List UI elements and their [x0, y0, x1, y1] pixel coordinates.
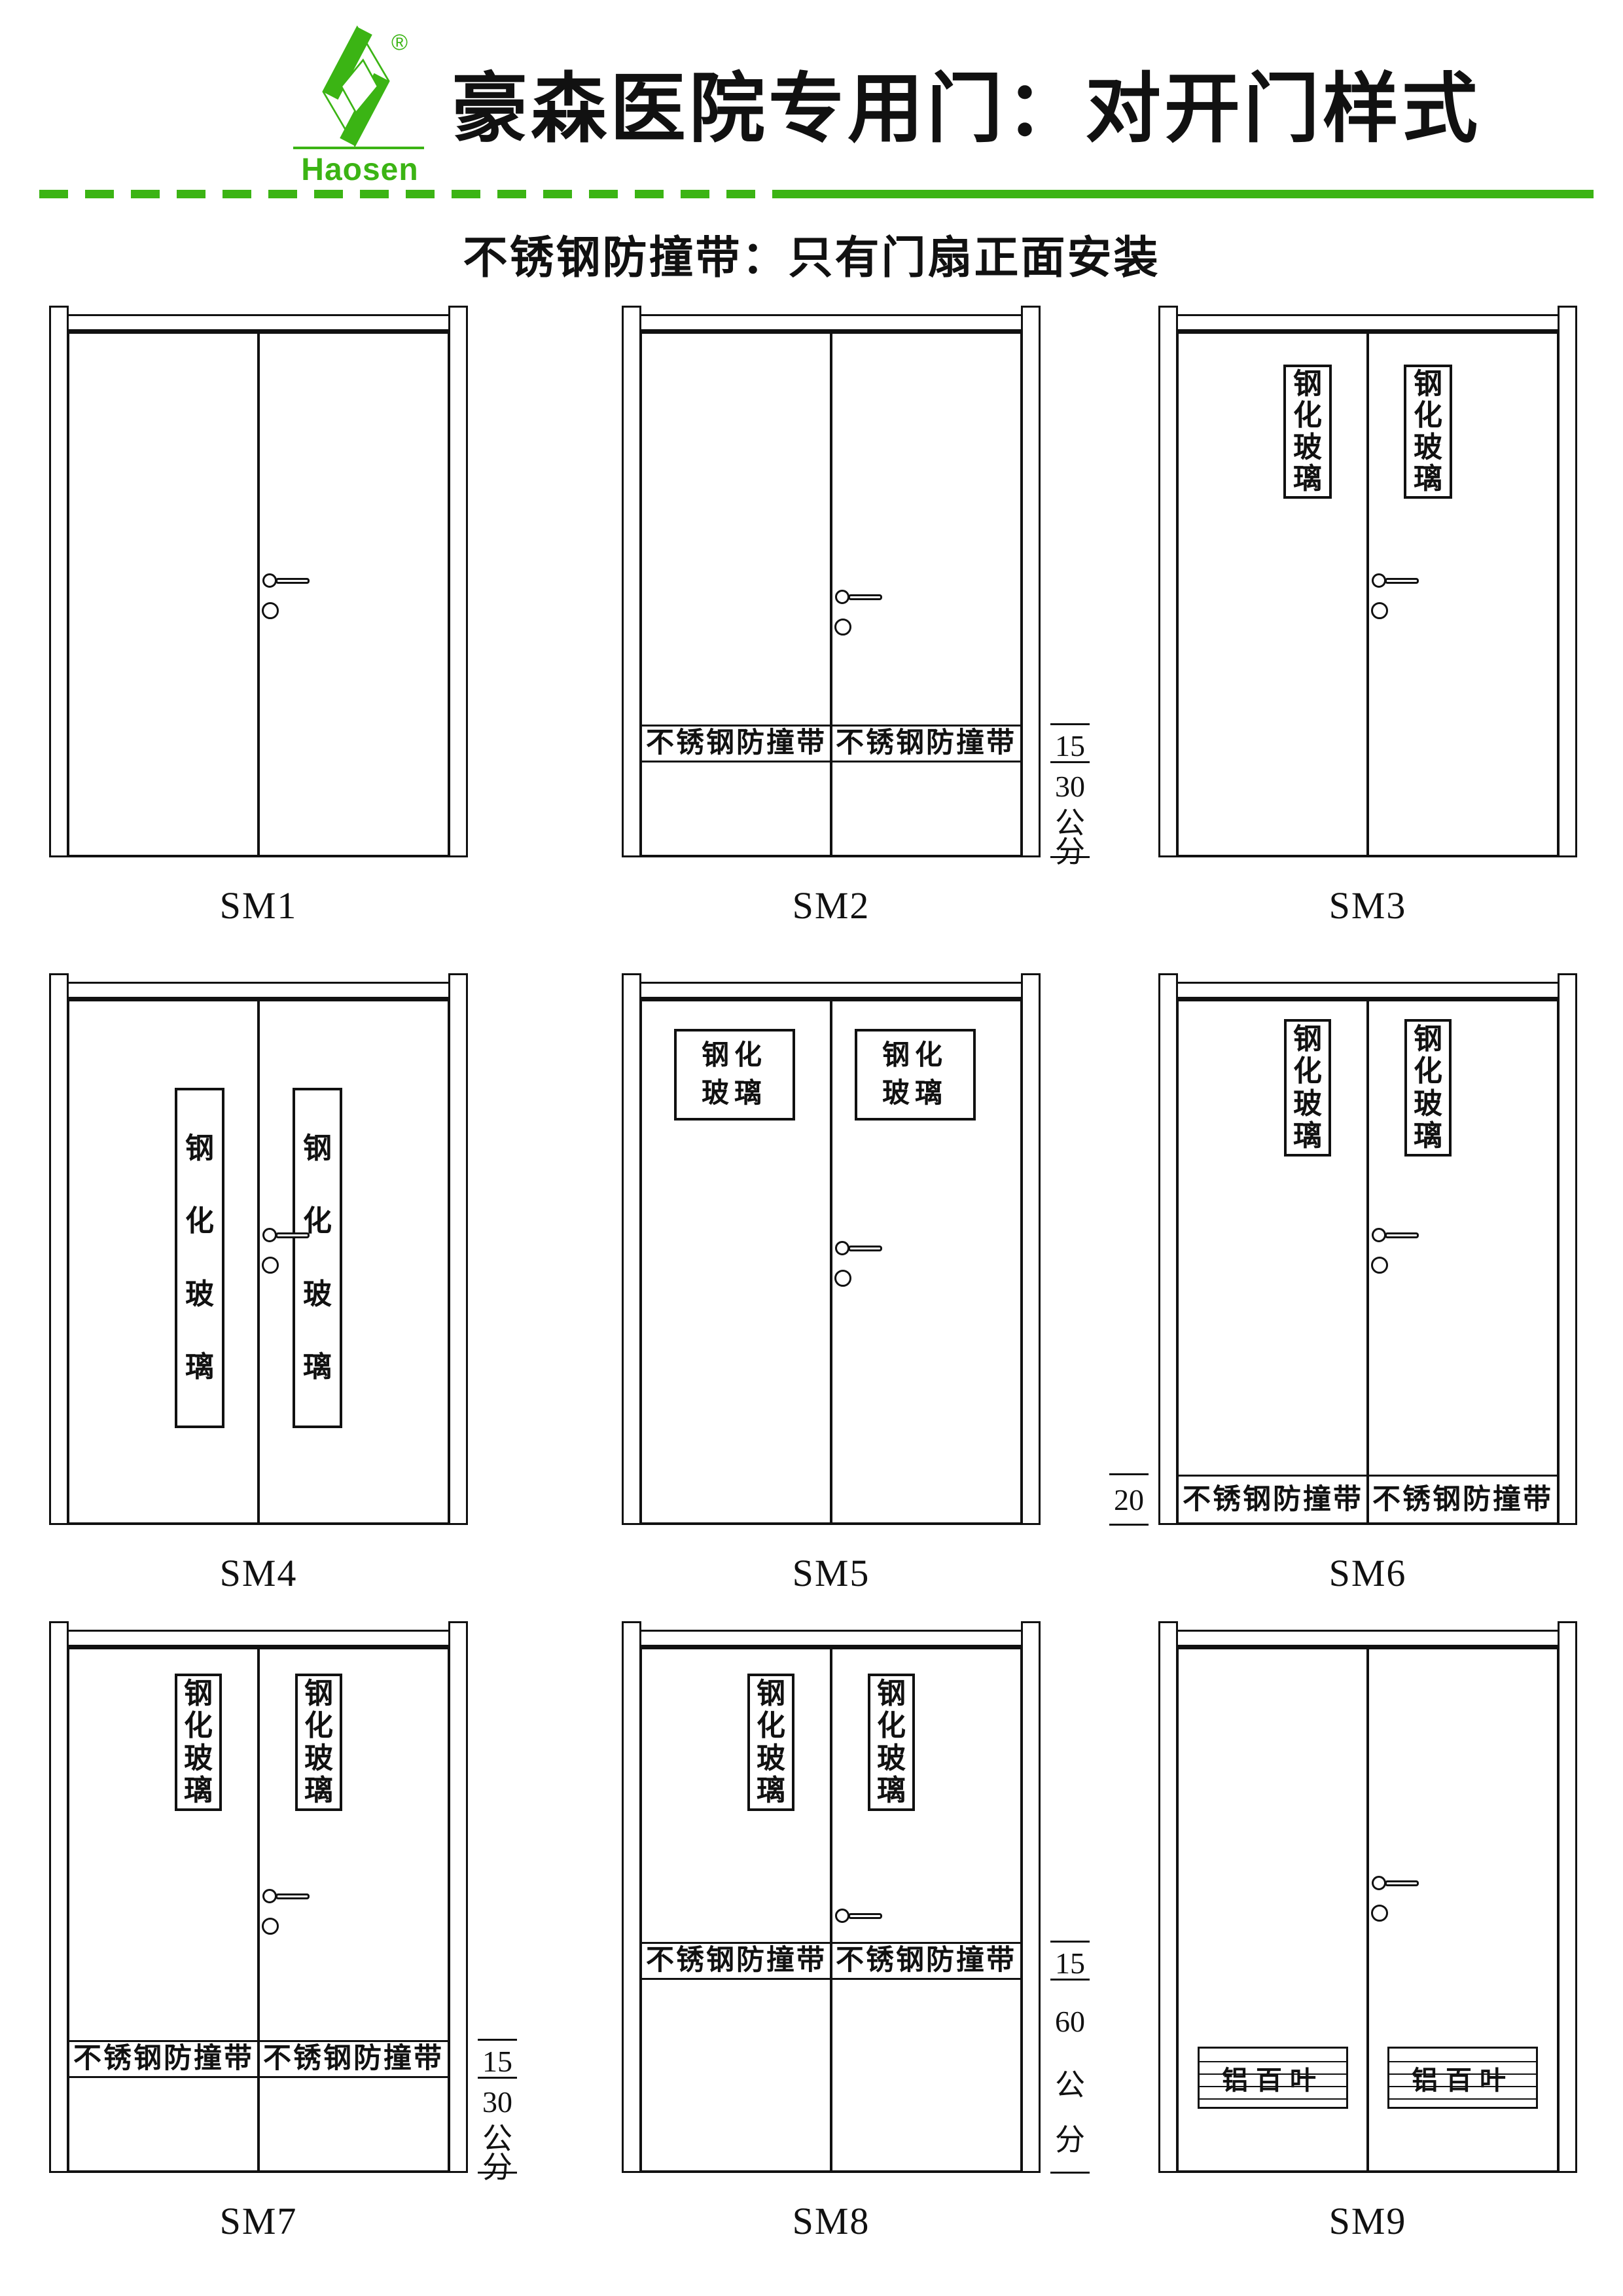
door-center-meeting-stile: [830, 331, 832, 857]
dimension-label: 15: [474, 2044, 520, 2079]
tempered-glass-panel: 钢化玻璃: [1404, 365, 1452, 499]
door-handle-lever: [1385, 1232, 1419, 1238]
glass-label-text: 玻: [185, 1280, 214, 1309]
door-frame-top-rail: [67, 982, 450, 999]
glass-label-text: 璃: [1414, 465, 1442, 493]
catalog-page: ® Haosen 豪森医院专用门：对开门样式 不锈钢防撞带：只有门扇正面安装 S…: [0, 0, 1623, 2296]
tempered-glass-panel: 钢化玻璃: [295, 1674, 342, 1811]
door-frame-post-left: [1158, 1621, 1178, 2173]
door-frame-post-right: [1558, 306, 1577, 857]
bump-strip-label: 不锈钢防撞带: [69, 2040, 259, 2078]
door-diagram-sm5: 钢化玻璃钢化玻璃SM5: [622, 973, 1041, 1525]
door-keyhole: [262, 1918, 279, 1935]
brand-logo: ® Haosen: [281, 20, 438, 203]
door-diagram-sm2: 不锈钢防撞带不锈钢防撞带1530公分SM2: [622, 306, 1041, 857]
glass-label-text: 璃: [1293, 1122, 1322, 1151]
glass-label-text: 钢: [185, 1134, 214, 1163]
logo-underline: [293, 147, 424, 149]
door-center-meeting-stile: [257, 999, 260, 1525]
dimension-label: 20: [1106, 1482, 1152, 1517]
glass-label-text: 钢: [1293, 1025, 1322, 1054]
door-diagram-sm8: 钢化玻璃钢化玻璃不锈钢防撞带不锈钢防撞带1560公分SM8: [622, 1621, 1041, 2173]
door-frame-post-left: [622, 973, 641, 1525]
door-frame-post-right: [1558, 1621, 1577, 2173]
door-handle-lever: [276, 578, 310, 584]
dimension-label: 分: [474, 2144, 520, 2187]
door-frame-post-left: [1158, 973, 1178, 1525]
dimension-annotation: 1530公分: [478, 1621, 517, 2173]
glass-label-text: 玻: [184, 1744, 213, 1773]
door-diagram-sm4: 钢化玻璃钢化玻璃SM4: [49, 973, 468, 1525]
page-subtitle: 不锈钢防撞带：只有门扇正面安装: [0, 221, 1623, 286]
dimension-annotation: 20: [1109, 973, 1149, 1525]
door-handle-rose: [835, 1909, 849, 1923]
glass-label-text: 化: [1293, 401, 1322, 430]
glass-label-text: 钢化: [882, 1042, 948, 1069]
tempered-glass-panel: 钢化玻璃: [1283, 365, 1332, 499]
door-frame-top-rail: [67, 1630, 450, 1647]
glass-label-text: 玻: [1414, 433, 1442, 462]
door-frame-post-left: [622, 1621, 641, 2173]
glass-label-text: 化: [757, 1712, 785, 1740]
brand-name: Haosen: [281, 152, 438, 188]
glass-label-text: 化: [303, 1207, 332, 1236]
glass-label-text: 钢: [877, 1679, 906, 1708]
glass-label-text: 玻: [1293, 433, 1322, 462]
bump-strip-label: 不锈钢防撞带: [641, 725, 831, 762]
door-handle-rose: [1372, 1228, 1386, 1242]
glass-label-text: 玻: [303, 1280, 332, 1309]
door-frame-top-rail: [639, 1630, 1023, 1647]
door-style-label: SM4: [49, 1551, 468, 1595]
dimension-tick: [478, 2039, 517, 2041]
tempered-glass-panel: 钢化玻璃: [175, 1674, 222, 1811]
door-frame-post-left: [1158, 306, 1178, 857]
header-divider: [39, 190, 1594, 198]
door-frame-top-rail: [1176, 982, 1560, 999]
door-frame-post-left: [49, 973, 69, 1525]
door-handle-lever: [1385, 1880, 1419, 1886]
glass-label-text: 钢: [304, 1679, 333, 1708]
dimension-tick: [1050, 723, 1090, 725]
tempered-glass-panel: 钢化玻璃: [1284, 1019, 1331, 1157]
door-handle-rose: [1372, 1876, 1386, 1890]
door-frame-post-right: [1021, 1621, 1041, 2173]
door-keyhole: [1371, 602, 1388, 619]
dimension-tick: [1109, 1524, 1149, 1526]
door-frame-post-right: [448, 306, 468, 857]
glass-label-text: 璃: [185, 1353, 214, 1382]
glass-label-text: 钢: [303, 1134, 332, 1163]
door-frame-top-rail: [1176, 314, 1560, 331]
glass-label-text: 钢: [1414, 370, 1442, 399]
bump-strip-label: 不锈钢防撞带: [641, 1942, 831, 1980]
glass-label-text: 璃: [757, 1776, 785, 1805]
dimension-annotation: 1560公分: [1050, 1621, 1090, 2173]
door-style-label: SM5: [622, 1551, 1041, 1595]
door-handle-rose: [835, 590, 849, 604]
glass-label-text: 钢: [184, 1679, 213, 1708]
door-handle-lever: [276, 1893, 310, 1899]
glass-label-text: 玻璃: [882, 1080, 948, 1107]
door-frame-top-rail: [639, 982, 1023, 999]
aluminum-louver-panel: 铝百叶: [1387, 2047, 1538, 2109]
logo-diamond-icon: [321, 25, 391, 148]
tempered-glass-panel: 钢化玻璃: [855, 1029, 976, 1121]
dimension-label: 15: [1047, 728, 1093, 763]
door-frame-top-rail: [639, 314, 1023, 331]
door-handle-rose: [1372, 573, 1386, 588]
louver-label: 铝百叶: [1389, 2049, 1536, 2107]
door-diagram-sm7: 钢化玻璃钢化玻璃不锈钢防撞带不锈钢防撞带1530公分SM7: [49, 1621, 468, 2173]
door-handle-lever: [276, 1232, 310, 1238]
dimension-annotation: 1530公分: [1050, 306, 1090, 857]
glass-label-text: 化: [877, 1712, 906, 1740]
door-handle-lever: [848, 1246, 882, 1251]
door-center-meeting-stile: [257, 331, 260, 857]
door-handle-lever: [848, 594, 882, 600]
door-center-meeting-stile: [830, 1647, 832, 2173]
registered-mark-icon: ®: [391, 30, 408, 56]
tempered-glass-panel: 钢化玻璃: [868, 1674, 915, 1811]
glass-label-text: 玻璃: [702, 1080, 767, 1107]
door-style-label: SM6: [1158, 1551, 1577, 1595]
door-center-meeting-stile: [1366, 331, 1369, 857]
dimension-tick: [1050, 2172, 1090, 2174]
door-center-meeting-stile: [257, 1647, 260, 2173]
door-frame-post-left: [622, 306, 641, 857]
door-frame-post-right: [1021, 306, 1041, 857]
dimension-label: 60: [1047, 2004, 1093, 2039]
door-center-meeting-stile: [1366, 1647, 1369, 2173]
bump-strip-label: 不锈钢防撞带: [831, 725, 1021, 762]
dimension-label: 15: [1047, 1946, 1093, 1981]
glass-label-text: 璃: [1414, 1122, 1442, 1151]
glass-label-text: 化: [185, 1207, 214, 1236]
louver-label: 铝百叶: [1200, 2049, 1346, 2107]
door-frame-top-rail: [1176, 1630, 1560, 1647]
glass-label-text: 玻: [304, 1744, 333, 1773]
door-handle-rose: [262, 1228, 277, 1242]
dimension-label: 分: [1047, 828, 1093, 871]
door-diagram-sm6: 钢化玻璃钢化玻璃不锈钢防撞带不锈钢防撞带20SM6: [1158, 973, 1577, 1525]
dimension-label: 分: [1047, 2116, 1093, 2159]
door-keyhole: [1371, 1905, 1388, 1922]
door-handle-rose: [835, 1241, 849, 1255]
tempered-glass-panel: 钢化玻璃: [1404, 1019, 1452, 1157]
glass-label-text: 玻: [1293, 1090, 1322, 1119]
tempered-glass-panel: 钢化玻璃: [674, 1029, 795, 1121]
door-frame-post-right: [1558, 973, 1577, 1525]
glass-label-text: 化: [1414, 1057, 1442, 1086]
glass-label-text: 玻: [877, 1744, 906, 1773]
door-handle-rose: [262, 1889, 277, 1903]
door-keyhole: [1371, 1257, 1388, 1274]
tempered-glass-panel: 钢化玻璃: [293, 1088, 342, 1428]
glass-label-text: 璃: [303, 1353, 332, 1382]
door-handle-lever: [848, 1913, 882, 1919]
glass-label-text: 化: [184, 1712, 213, 1740]
glass-label-text: 化: [1414, 401, 1442, 430]
door-style-label: SM2: [622, 884, 1041, 927]
glass-label-text: 钢化: [702, 1042, 767, 1069]
dimension-tick: [1109, 1473, 1149, 1475]
door-style-label: SM9: [1158, 2199, 1577, 2243]
glass-label-text: 钢: [1293, 370, 1322, 399]
door-diagram-sm9: 铝百叶铝百叶SM9: [1158, 1621, 1577, 2173]
door-center-meeting-stile: [830, 999, 832, 1525]
bump-strip-label: 不锈钢防撞带: [1178, 1475, 1368, 1525]
door-frame-post-left: [49, 1621, 69, 2173]
door-style-label: SM3: [1158, 884, 1577, 927]
glass-label-text: 玻: [757, 1744, 785, 1773]
bump-strip-label: 不锈钢防撞带: [831, 1942, 1021, 1980]
glass-label-text: 璃: [877, 1776, 906, 1805]
glass-label-text: 玻: [1414, 1090, 1442, 1119]
door-frame-post-right: [448, 973, 468, 1525]
dimension-label: 公: [1047, 2061, 1093, 2104]
door-center-meeting-stile: [1366, 999, 1369, 1525]
door-keyhole: [834, 619, 851, 636]
glass-label-text: 化: [1293, 1057, 1322, 1086]
glass-label-text: 钢: [1414, 1025, 1442, 1054]
door-style-label: SM7: [49, 2199, 468, 2243]
aluminum-louver-panel: 铝百叶: [1198, 2047, 1348, 2109]
divider-solid-segment: [772, 190, 1594, 198]
divider-dashed-segment: [39, 190, 772, 198]
door-keyhole: [262, 602, 279, 619]
door-keyhole: [262, 1257, 279, 1274]
tempered-glass-panel: 钢化玻璃: [747, 1674, 794, 1811]
glass-label-text: 璃: [184, 1776, 213, 1805]
bump-strip-label: 不锈钢防撞带: [1368, 1475, 1558, 1525]
glass-label-text: 钢: [757, 1679, 785, 1708]
bump-strip-label: 不锈钢防撞带: [259, 2040, 448, 2078]
tempered-glass-panel: 钢化玻璃: [175, 1088, 224, 1428]
page-title: 豪森医院专用门：对开门样式: [452, 47, 1368, 157]
door-keyhole: [834, 1270, 851, 1287]
door-style-label: SM1: [49, 884, 468, 927]
dimension-tick: [1050, 1941, 1090, 1943]
glass-label-text: 璃: [304, 1776, 333, 1805]
door-frame-post-right: [448, 1621, 468, 2173]
glass-label-text: 化: [304, 1712, 333, 1740]
door-frame-top-rail: [67, 314, 450, 331]
door-frame-post-left: [49, 306, 69, 857]
door-handle-rose: [262, 573, 277, 588]
door-diagram-sm1: SM1: [49, 306, 468, 857]
glass-label-text: 璃: [1293, 465, 1322, 493]
door-handle-lever: [1385, 578, 1419, 584]
door-style-label: SM8: [622, 2199, 1041, 2243]
door-diagram-sm3: 钢化玻璃钢化玻璃SM3: [1158, 306, 1577, 857]
door-frame-post-right: [1021, 973, 1041, 1525]
